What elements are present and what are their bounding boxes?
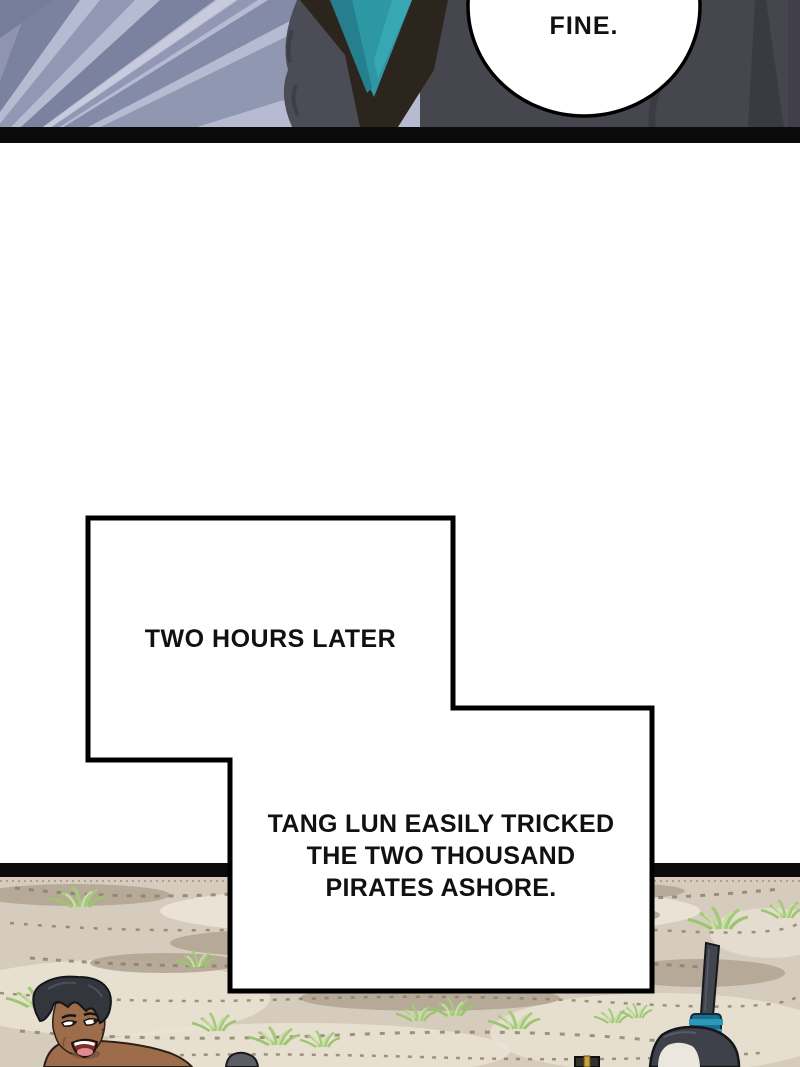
panel-divider-bar-top xyxy=(0,127,800,143)
caption-box-2-line-2: THE TWO THOUSAND xyxy=(307,840,576,872)
tongue xyxy=(77,1048,93,1056)
sword-pommel xyxy=(575,1056,599,1067)
caption-box-2-line-3: PIRATES ASHORE. xyxy=(326,872,557,904)
speech-bubble-text: FINE. xyxy=(469,2,699,50)
caption-box-2-line-1: TANG LUN EASILY TRICKED xyxy=(268,808,615,840)
comic-page: FINE. xyxy=(0,0,800,1067)
blue-wrap-band xyxy=(689,1019,723,1025)
caption-box-2-text: TANG LUN EASILY TRICKED THE TWO THOUSAND… xyxy=(235,718,647,993)
coat-edge-shadow xyxy=(788,0,800,127)
